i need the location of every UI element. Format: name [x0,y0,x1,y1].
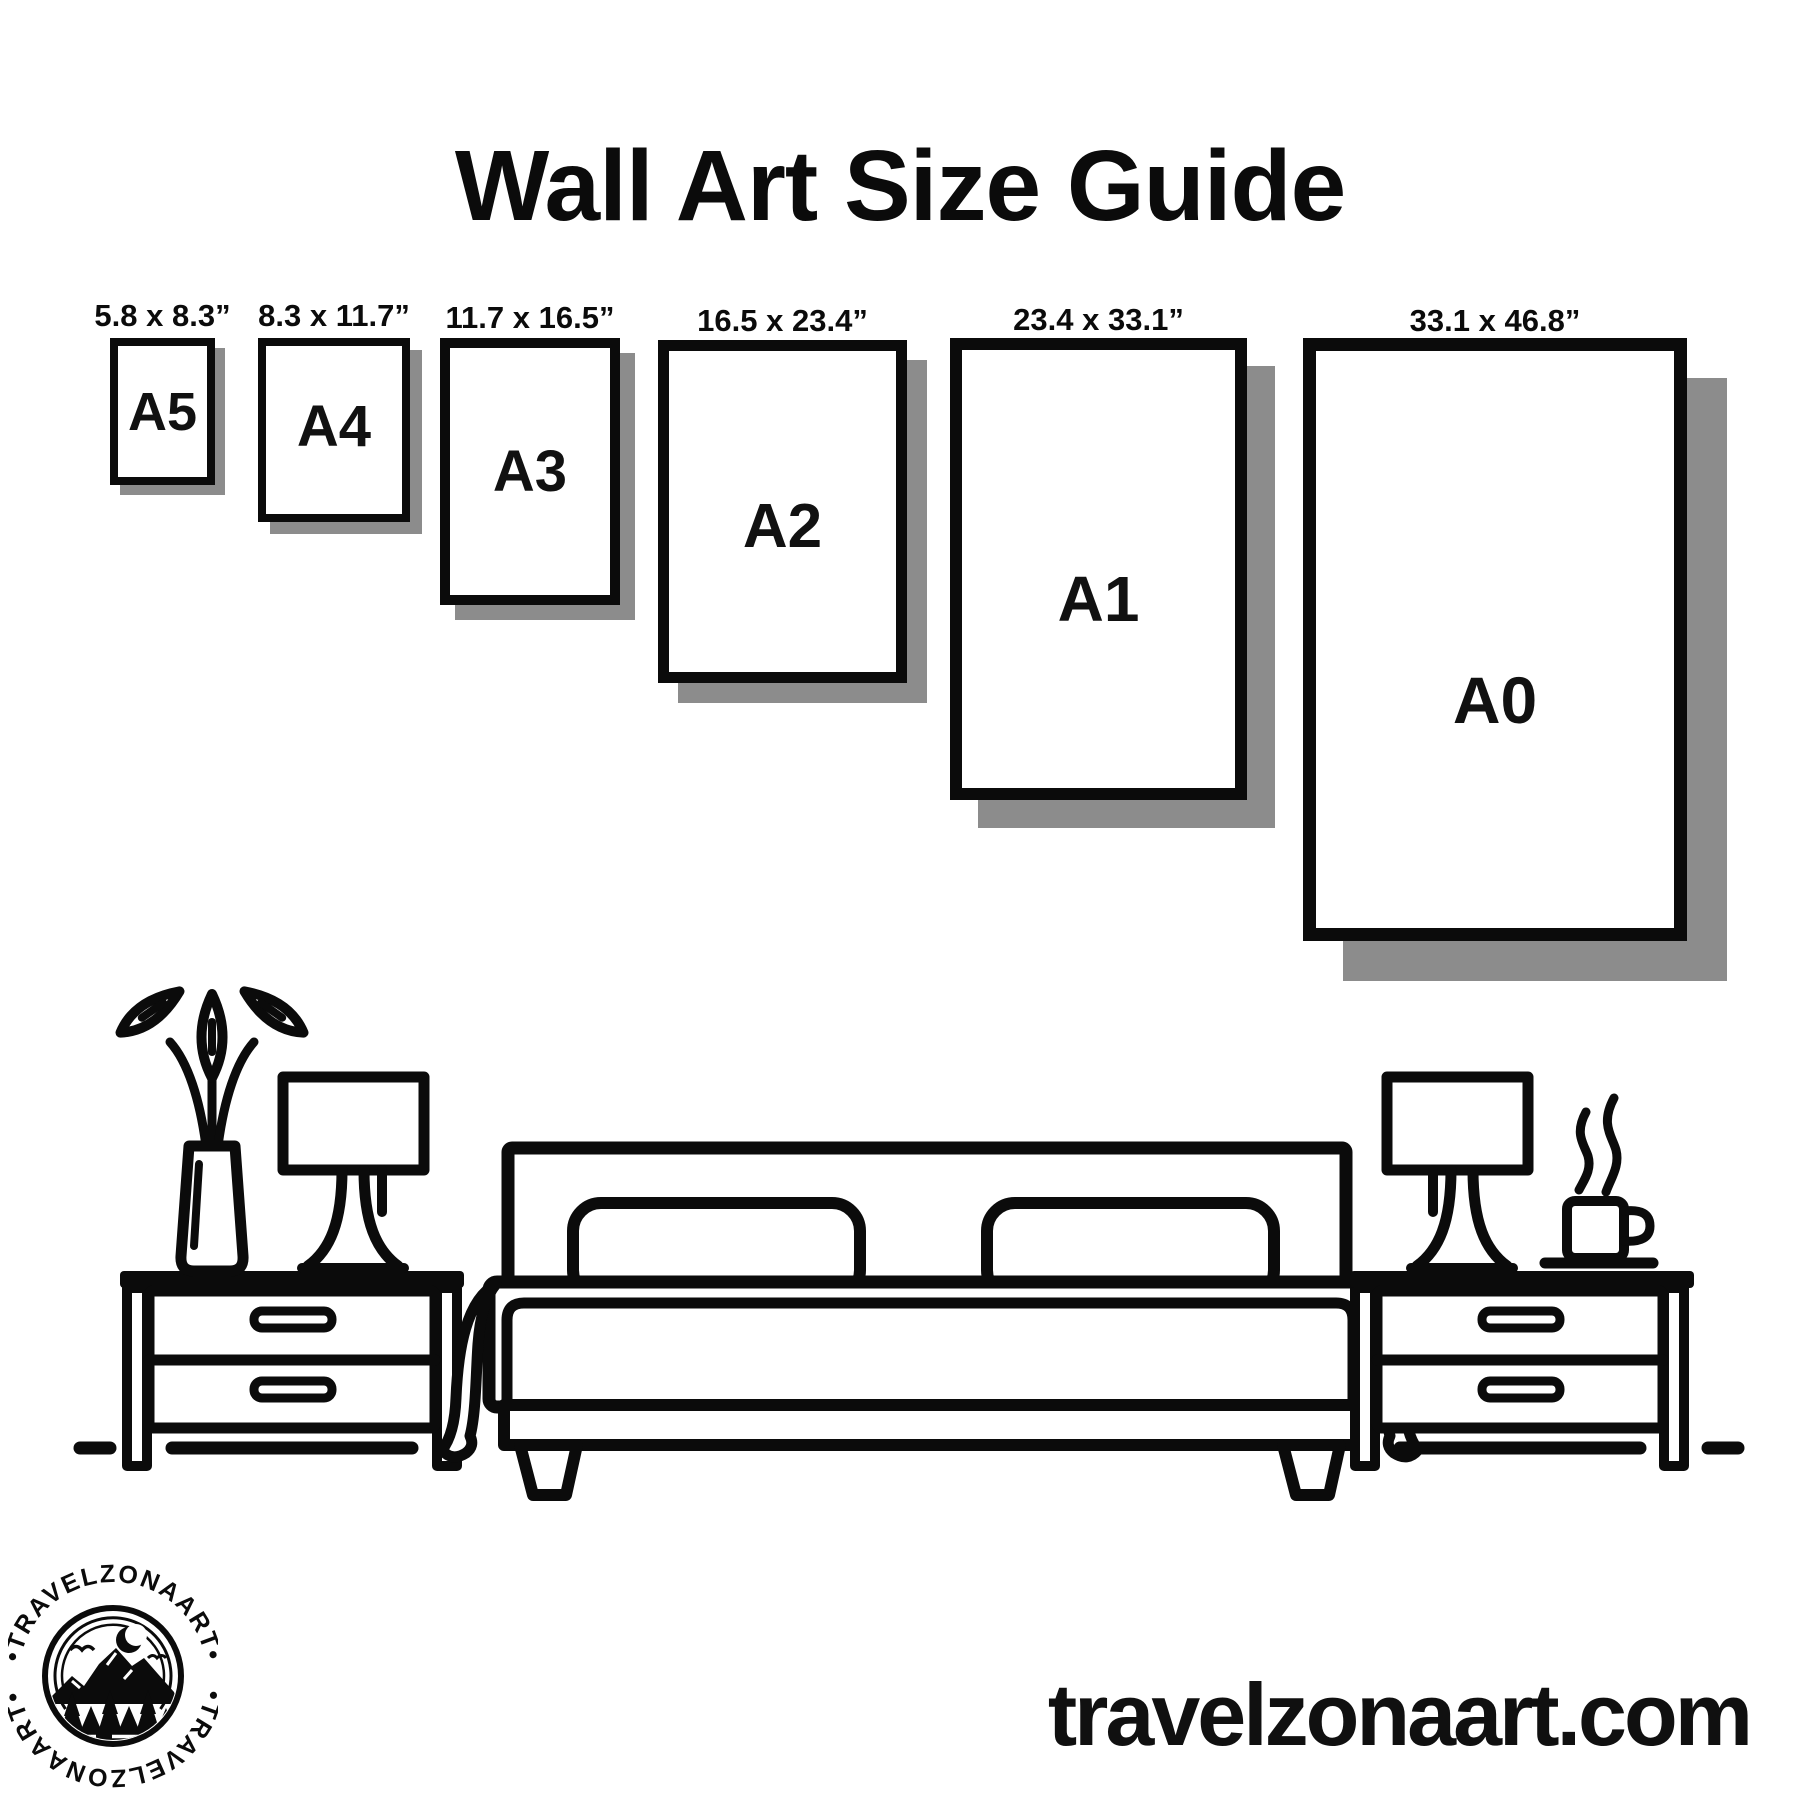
frame-a4-dimensions: 8.3 x 11.7” [258,298,410,334]
travelzonaart-logo: •TRAVELZONAART• •TRAVELZONAART• [8,1552,218,1800]
frame-a5-label: A5 [128,381,197,443]
wall-art-size-guide-poster: Wall Art Size Guide 5.8 x 8.3” A5 8.3 x … [0,0,1800,1800]
frame-a2: 16.5 x 23.4” A2 [658,340,907,683]
bedroom-scene [0,880,1800,1520]
frame-a4: 8.3 x 11.7” A4 [258,338,410,522]
frame-a3-label: A3 [493,438,567,505]
steam-icon [1579,1112,1589,1190]
frame-a0: 33.1 x 46.8” A0 [1303,338,1687,941]
frame-a1: 23.4 x 33.1” A1 [950,338,1247,800]
page-title: Wall Art Size Guide [0,129,1800,244]
frame-a4-label: A4 [297,393,371,460]
frame-a0-label: A0 [1453,662,1537,738]
frame-a1-label: A1 [1058,562,1140,636]
table-lamp-icon [1387,1077,1528,1268]
frame-a3: 11.7 x 16.5” A3 [440,338,620,605]
bird-icon [148,1656,166,1659]
nightstand-left-icon [120,1271,464,1466]
website-url: travelzonaart.com [1048,1664,1750,1766]
frame-a0-dimensions: 33.1 x 46.8” [1410,303,1581,339]
double-bed-icon [442,1148,1418,1495]
frame-a2-dimensions: 16.5 x 23.4” [697,303,868,339]
coffee-mug-icon [1545,1098,1653,1263]
frame-a2-label: A2 [743,491,822,562]
svg-text:•TRAVELZONAART•: •TRAVELZONAART• [8,1560,218,1664]
bird-icon [70,1647,94,1651]
steam-icon [1606,1098,1617,1192]
frame-a5: 5.8 x 8.3” A5 [110,338,215,485]
table-lamp-icon [283,1077,424,1268]
frame-a5-dimensions: 5.8 x 8.3” [94,298,230,334]
frame-a3-dimensions: 11.7 x 16.5” [446,300,615,336]
frame-a1-dimensions: 23.4 x 33.1” [1013,302,1184,338]
